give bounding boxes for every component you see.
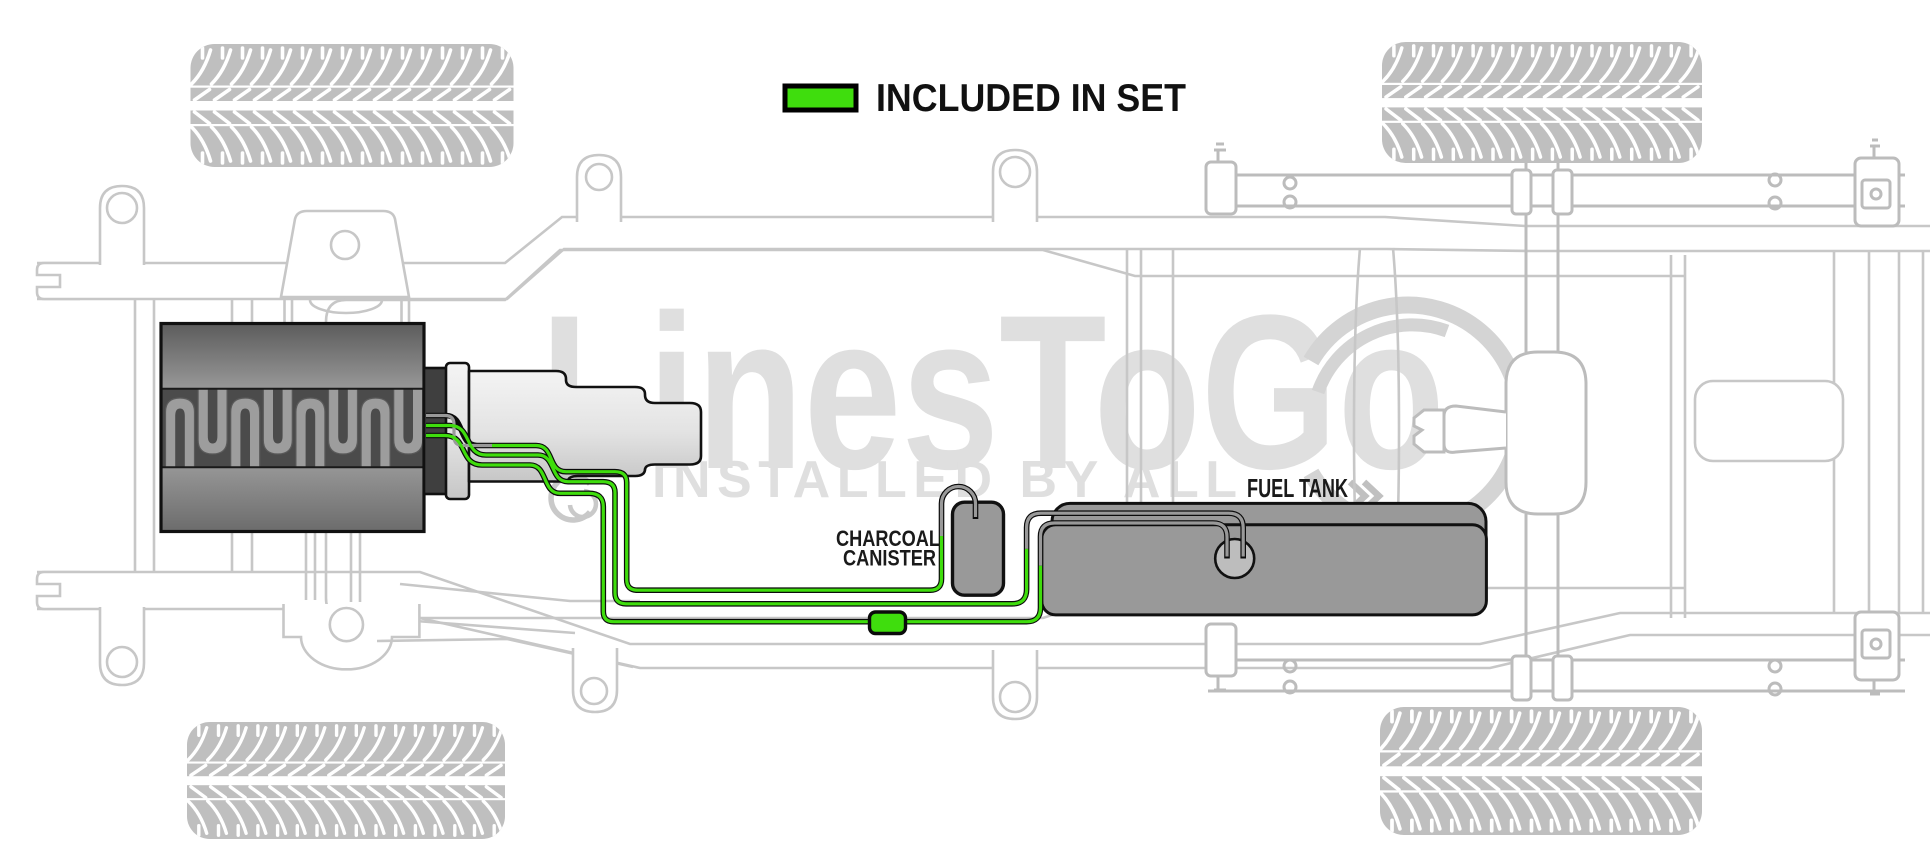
svg-text:INCLUDED IN SET: INCLUDED IN SET bbox=[876, 77, 1186, 120]
svg-text:CANISTER: CANISTER bbox=[843, 546, 936, 571]
svg-text:FUEL TANK: FUEL TANK bbox=[1247, 473, 1348, 503]
